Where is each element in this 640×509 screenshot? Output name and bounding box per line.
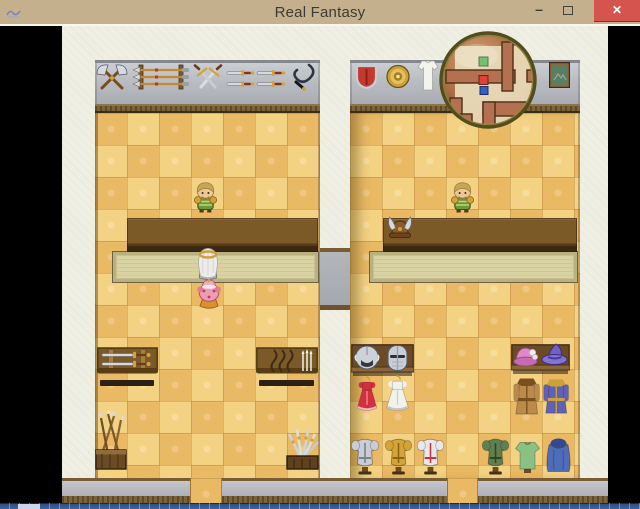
game-screen	[0, 26, 640, 503]
picture-frame	[549, 62, 570, 88]
game-viewport[interactable]	[62, 26, 608, 503]
garment-white-display	[417, 59, 439, 93]
weapon-crossed-swords	[193, 63, 223, 93]
taskbar-thumb[interactable]	[18, 504, 40, 509]
cloak-blue	[544, 436, 573, 475]
table-bows	[256, 346, 318, 388]
floor-right-room[interactable]	[350, 113, 580, 478]
maximize-button[interactable]	[554, 0, 582, 21]
armor-stand-green	[481, 436, 510, 475]
npc-shopkeeper[interactable]	[195, 245, 221, 280]
maximize-icon	[563, 6, 573, 15]
hat-pink	[513, 344, 538, 370]
npc-princess[interactable]	[196, 278, 222, 309]
window-titlebar[interactable]: Real Fantasy – ✕	[0, 0, 640, 24]
helmet-winged	[353, 344, 381, 372]
hat-wizard	[541, 342, 569, 370]
helmet-great	[383, 343, 412, 373]
dress-red	[354, 376, 380, 412]
doorway-right[interactable]	[447, 478, 478, 503]
player-hero-right[interactable]	[450, 180, 475, 213]
wall-bottom	[62, 478, 608, 496]
shop-counter-left	[127, 218, 318, 252]
player-hero-left[interactable]	[193, 180, 218, 213]
doorway-left[interactable]	[190, 478, 222, 503]
taskbar-ticks	[0, 503, 640, 509]
armor-stand-gold	[384, 436, 413, 475]
divider-passage	[320, 248, 350, 310]
minimap-overlay	[438, 30, 538, 130]
game-window: Real Fantasy – ✕	[0, 0, 640, 509]
table-swords	[97, 346, 158, 388]
robe-blue	[542, 376, 570, 417]
armor-stand-silver	[350, 436, 380, 475]
weapon-whip	[288, 62, 317, 92]
shield-buckler	[386, 64, 410, 89]
dress-white	[383, 375, 412, 412]
weapon-daggers-b	[255, 65, 287, 91]
rack-sword-pile	[284, 426, 321, 472]
weapon-spear-rack	[133, 63, 191, 91]
helmet-horned-counter	[386, 215, 414, 241]
display-ledge-left	[95, 104, 320, 113]
weapon-daggers-a	[225, 65, 256, 91]
armor-stand-white-red	[416, 436, 445, 475]
rack-spear-quiver	[94, 410, 128, 472]
minimize-button[interactable]: –	[524, 0, 554, 21]
wall-bottom-trim	[62, 496, 608, 503]
coat-brown	[512, 375, 541, 418]
counter-mat-right	[370, 252, 577, 282]
tunic-green	[514, 438, 541, 475]
weapon-axes-display	[95, 62, 129, 92]
shield-red	[355, 63, 378, 90]
close-button[interactable]: ✕	[594, 0, 640, 21]
taskbar-strip	[0, 503, 640, 509]
